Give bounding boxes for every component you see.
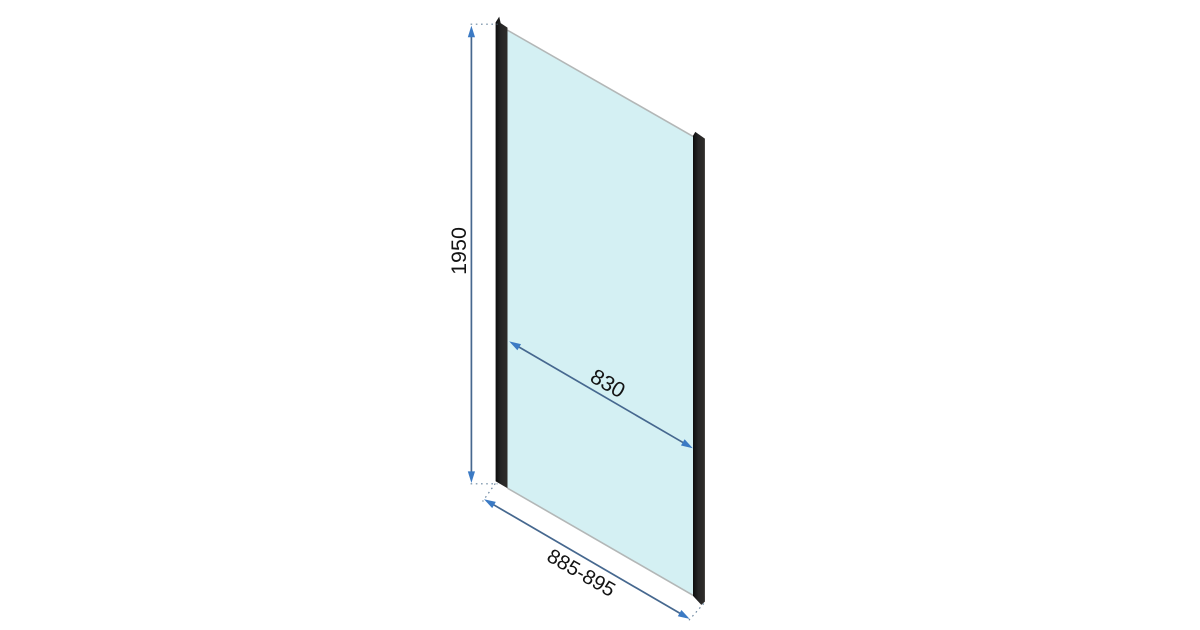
svg-text:1950: 1950 — [447, 227, 471, 275]
svg-text:885-895: 885-895 — [543, 545, 619, 601]
